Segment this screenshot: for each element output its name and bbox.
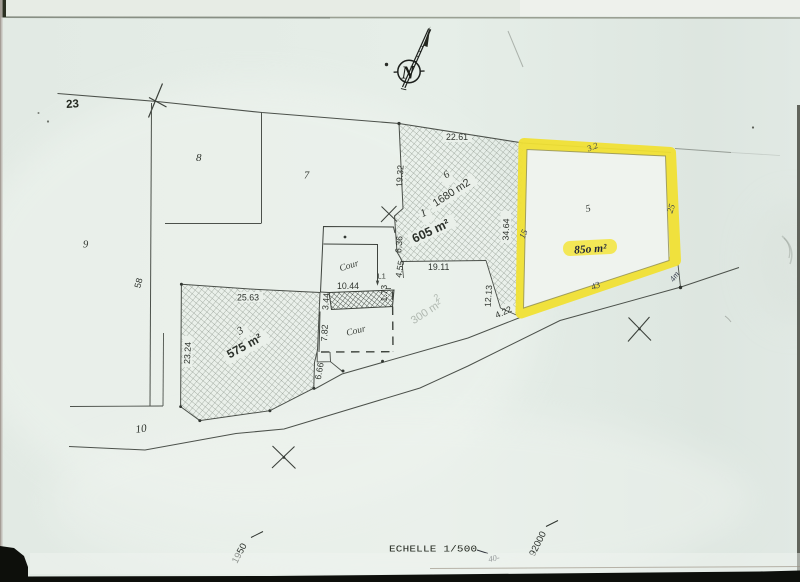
svg-text:34.64: 34.64 [501, 218, 512, 240]
svg-text:L1: L1 [378, 272, 386, 281]
svg-text:8: 8 [196, 152, 202, 164]
svg-text:7: 7 [304, 171, 310, 182]
svg-text:85o m²: 85o m² [574, 242, 608, 256]
svg-text:3.44: 3.44 [320, 292, 331, 310]
svg-text:12.13: 12.13 [483, 285, 495, 308]
svg-text:6.36: 6.36 [393, 235, 404, 253]
svg-text:23: 23 [66, 98, 80, 111]
svg-text:7.82: 7.82 [319, 324, 330, 342]
svg-text:N: N [401, 63, 416, 83]
svg-text:10.44: 10.44 [337, 281, 359, 291]
svg-text:25.63: 25.63 [237, 293, 259, 303]
svg-text:19.32: 19.32 [394, 165, 406, 188]
svg-text:19.11: 19.11 [428, 262, 449, 272]
svg-text:22.61: 22.61 [446, 132, 468, 142]
svg-text:23.24: 23.24 [182, 342, 193, 365]
svg-text:10: 10 [135, 422, 148, 435]
svg-text:1.73: 1.73 [379, 285, 389, 302]
svg-text:9: 9 [83, 240, 89, 251]
